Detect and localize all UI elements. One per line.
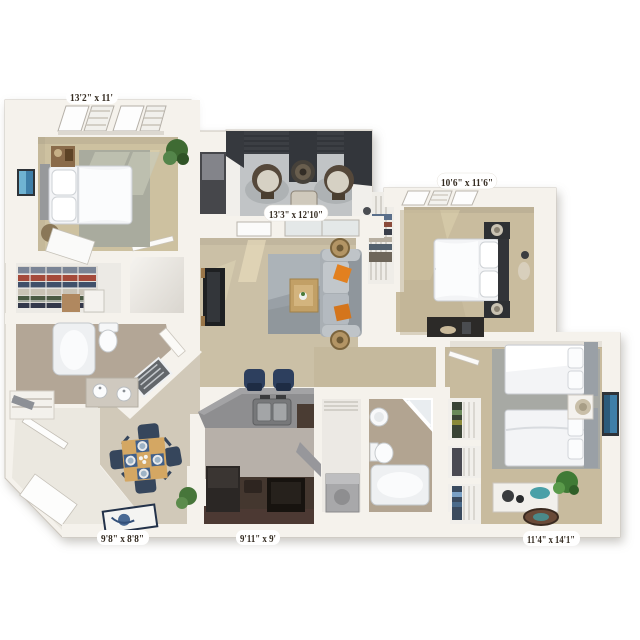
svg-text:13'3" x 12'10": 13'3" x 12'10" (269, 210, 323, 221)
svg-text:13'2" x 11': 13'2" x 11' (70, 93, 113, 104)
svg-text:10'6" x 11'6": 10'6" x 11'6" (441, 178, 493, 189)
svg-text:9'11" x 9': 9'11" x 9' (240, 534, 276, 545)
svg-text:11'4" x 14'1": 11'4" x 14'1" (527, 535, 575, 546)
svg-text:9'8" x 8'8": 9'8" x 8'8" (101, 534, 144, 545)
